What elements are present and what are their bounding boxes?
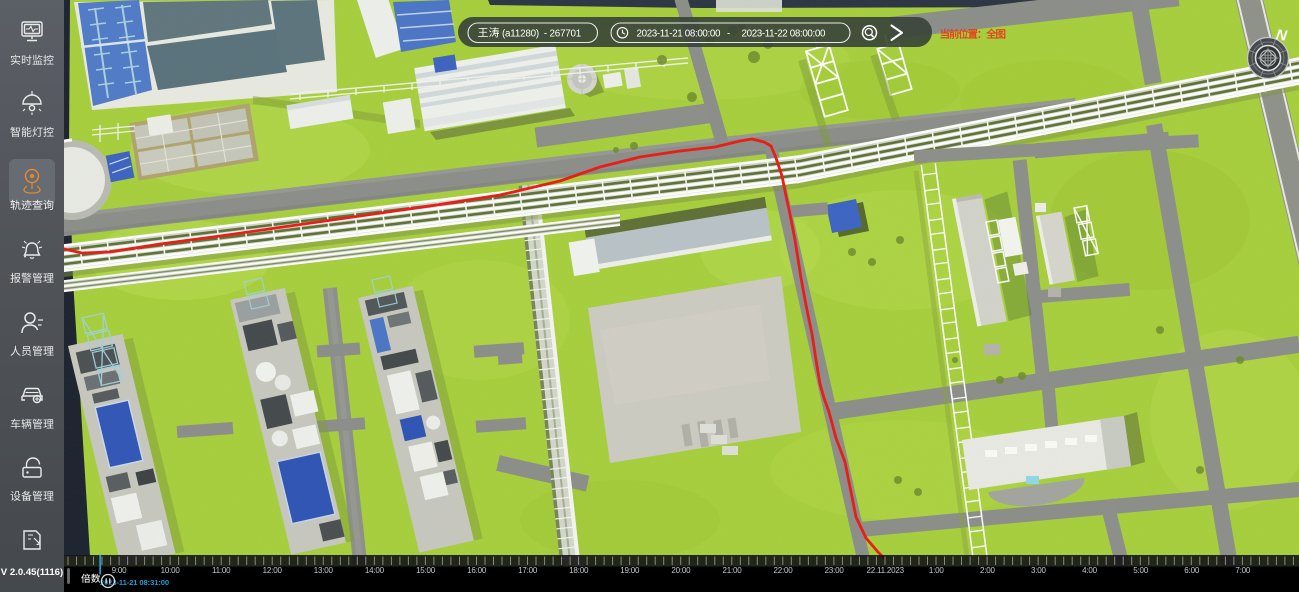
svg-text:3:00: 3:00 <box>1031 566 1047 575</box>
svg-text:22.11.2023: 22.11.2023 <box>866 566 904 575</box>
svg-text:15:00: 15:00 <box>416 566 436 575</box>
svg-text:-: - <box>727 28 730 39</box>
svg-text:19:00: 19:00 <box>620 566 640 575</box>
svg-text:12:00: 12:00 <box>263 566 283 575</box>
svg-text:10:00: 10:00 <box>161 566 181 575</box>
svg-text:(a11280) - 267701: (a11280) - 267701 <box>502 28 581 39</box>
svg-text:17:00: 17:00 <box>518 566 538 575</box>
svg-text:16:00: 16:00 <box>467 566 487 575</box>
svg-text:22:00: 22:00 <box>773 566 793 575</box>
svg-text:7:00: 7:00 <box>1235 566 1251 575</box>
svg-text:23:00: 23:00 <box>825 566 845 575</box>
svg-text:21:00: 21:00 <box>722 566 742 575</box>
svg-text:4:00: 4:00 <box>1082 566 1098 575</box>
svg-text:18:00: 18:00 <box>569 566 589 575</box>
svg-text:1:00: 1:00 <box>929 566 945 575</box>
svg-text:2023-11-21 08:00:00: 2023-11-21 08:00:00 <box>637 28 721 39</box>
svg-text:2023-11-22 08:00:00: 2023-11-22 08:00:00 <box>742 28 826 39</box>
svg-text:6:00: 6:00 <box>1184 566 1200 575</box>
svg-text:20:00: 20:00 <box>671 566 691 575</box>
svg-text:5:00: 5:00 <box>1133 566 1149 575</box>
svg-text:13:00: 13:00 <box>314 566 334 575</box>
svg-text:2:00: 2:00 <box>980 566 996 575</box>
svg-text:14:00: 14:00 <box>365 566 385 575</box>
svg-text:11:00: 11:00 <box>212 566 231 575</box>
